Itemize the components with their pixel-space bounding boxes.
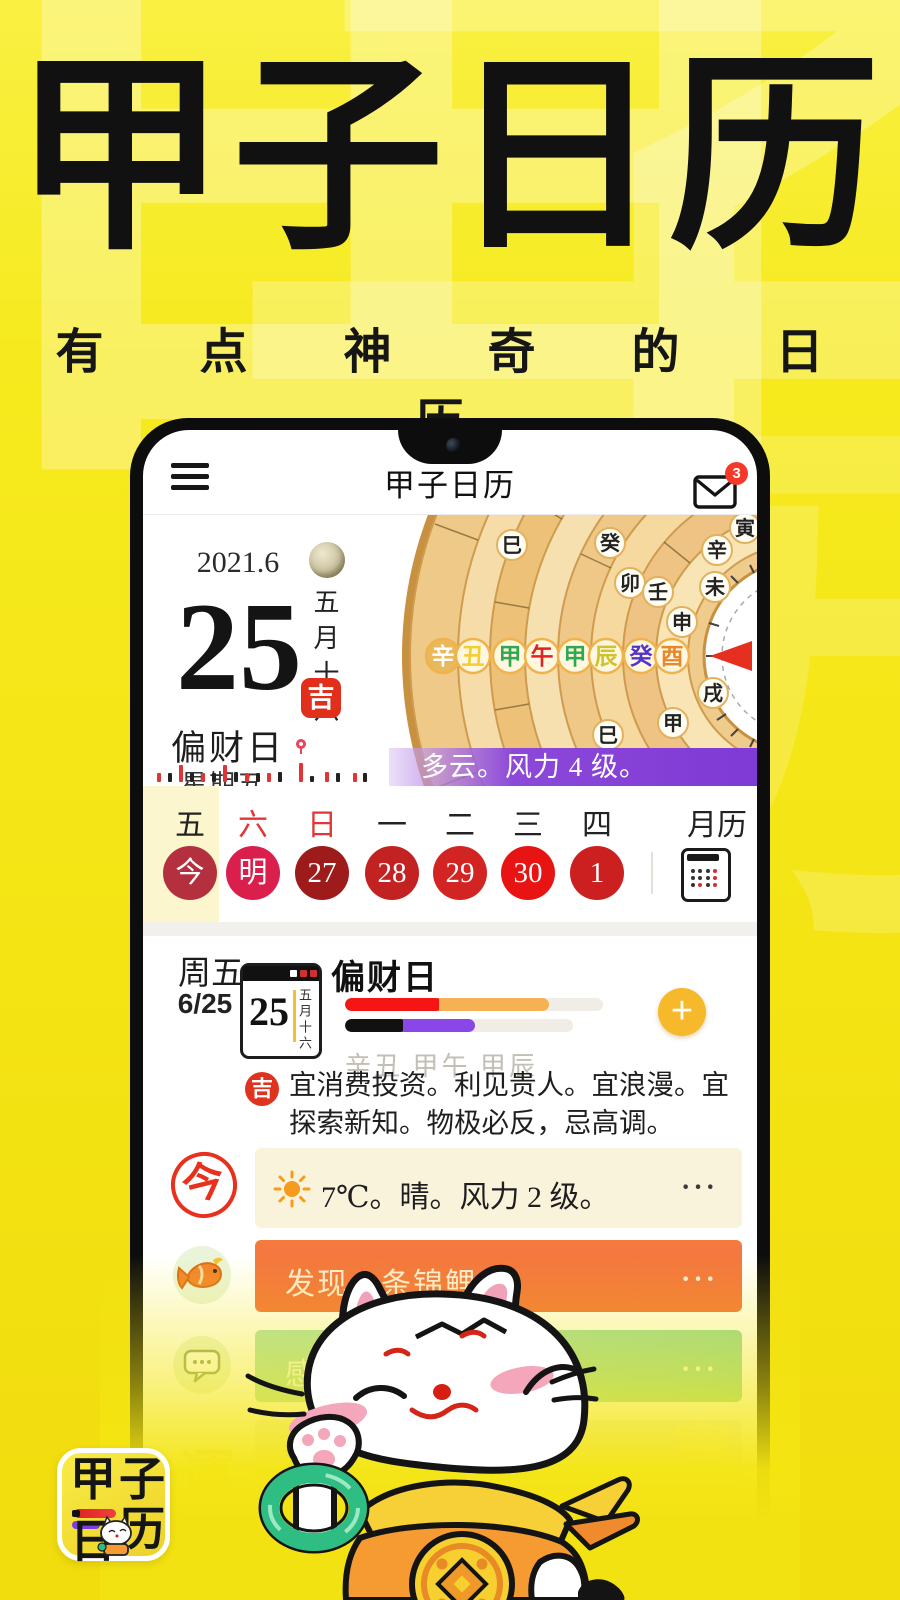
svg-text:辰: 辰 [595,644,618,669]
poster-title: 甲子日历 [0,52,900,264]
svg-text:丑: 丑 [462,644,485,669]
svg-text:巳: 巳 [502,535,522,557]
ruler-pin-icon [296,739,306,749]
detail-date: 6/25 [163,988,247,1020]
moon-phase-icon [309,542,345,578]
lucky-cat-mascot [210,1262,690,1600]
month-view-label[interactable]: 月历 [679,800,755,844]
unread-badge: 3 [725,462,748,485]
date-circle-28[interactable]: 28 [365,846,419,900]
fortune-bar-2 [345,1019,573,1032]
weather-banner: 多云。风力 4 级。 [389,748,757,786]
svg-text:辛: 辛 [432,643,455,669]
weekday-sat[interactable]: 六 [221,800,285,844]
calendar-icon[interactable] [681,848,731,902]
poster: 甲 子 历 甲子日历 有 点 神 奇 的 日 历 甲子日历 3 2021.6 2… [0,0,900,1600]
sun-icon [273,1170,311,1208]
svg-text:寅: 寅 [735,516,755,540]
svg-text:辛: 辛 [707,538,727,562]
weekday-fri[interactable]: 五 [158,800,222,844]
weather-more-button[interactable]: ··· [681,1172,718,1204]
weekday-mon[interactable]: 一 [360,800,424,844]
svg-text:甲: 甲 [499,644,522,669]
date-circle-tomorrow[interactable]: 明 [226,846,280,900]
date-circle-29[interactable]: 29 [433,846,487,900]
mini-card-day: 25 [247,988,291,1035]
svg-text:申: 申 [672,610,692,634]
svg-text:甲: 甲 [663,713,683,735]
fortune-wheel[interactable]: 巳 癸 卯 壬 申 未 辛 寅 巳 甲 戌 辛 丑 甲 午 甲 [390,515,757,786]
wheel-graphic: 巳 癸 卯 壬 申 未 辛 寅 巳 甲 戌 辛 丑 甲 午 甲 [390,515,757,786]
strip-divider [651,852,653,894]
logo-cat-icon [90,1515,140,1562]
app-title: 甲子日历 [143,460,757,505]
svg-text:壬: 壬 [648,581,668,604]
today-stamp: 今 [164,1145,244,1225]
date-circle-1[interactable]: 1 [570,846,624,900]
weather-text: 7℃。晴。风力 2 级。 [321,1172,610,1216]
mini-card-lunar: 五月十六 [298,988,314,1052]
date-ruler[interactable] [157,746,367,782]
fortune-bar-1 [345,998,603,1011]
luck-badge-small: 吉 [245,1072,279,1106]
detail-fortune-title: 偏财日 [331,950,439,999]
app-logo: 甲 子 日 历 [57,1448,170,1561]
weekday-tue[interactable]: 二 [428,800,492,844]
svg-text:癸: 癸 [599,531,621,555]
mini-calendar-card[interactable]: 25 五月十六 [240,963,322,1059]
svg-text:酉: 酉 [661,644,684,669]
svg-text:午: 午 [531,643,554,669]
svg-text:未: 未 [705,576,725,599]
weekday-thu[interactable]: 四 [565,800,629,844]
camera-icon [446,438,461,453]
add-event-button[interactable]: + [658,988,706,1036]
svg-text:戌: 戌 [703,681,723,705]
logo-char-2: 子 [119,1457,165,1503]
date-circle-today[interactable]: 今 [163,846,217,900]
svg-text:卯: 卯 [620,572,640,595]
week-strip: 五 六 日 一 二 三 四 月历 今 明 27 28 29 30 1 [143,786,757,922]
svg-text:甲: 甲 [564,644,587,669]
weekday-sun[interactable]: 日 [290,800,354,844]
svg-text:巳: 巳 [598,725,618,747]
weekday-wed[interactable]: 三 [496,800,560,844]
logo-char-1: 甲 [70,1457,116,1503]
date-circle-27[interactable]: 27 [295,846,349,900]
date-circle-30[interactable]: 30 [501,846,555,900]
daily-advice: 宜消费投资。利见贵人。宜浪漫。宜探索新知。物极必反，忌高调。 [289,1066,741,1142]
luck-badge: 吉 [301,678,341,718]
section-gap [143,922,757,936]
svg-text:癸: 癸 [629,643,654,669]
faded-mark-shi: 事 [695,1518,749,1597]
weather-card[interactable]: 7℃。晴。风力 2 级。 ··· [255,1148,742,1228]
